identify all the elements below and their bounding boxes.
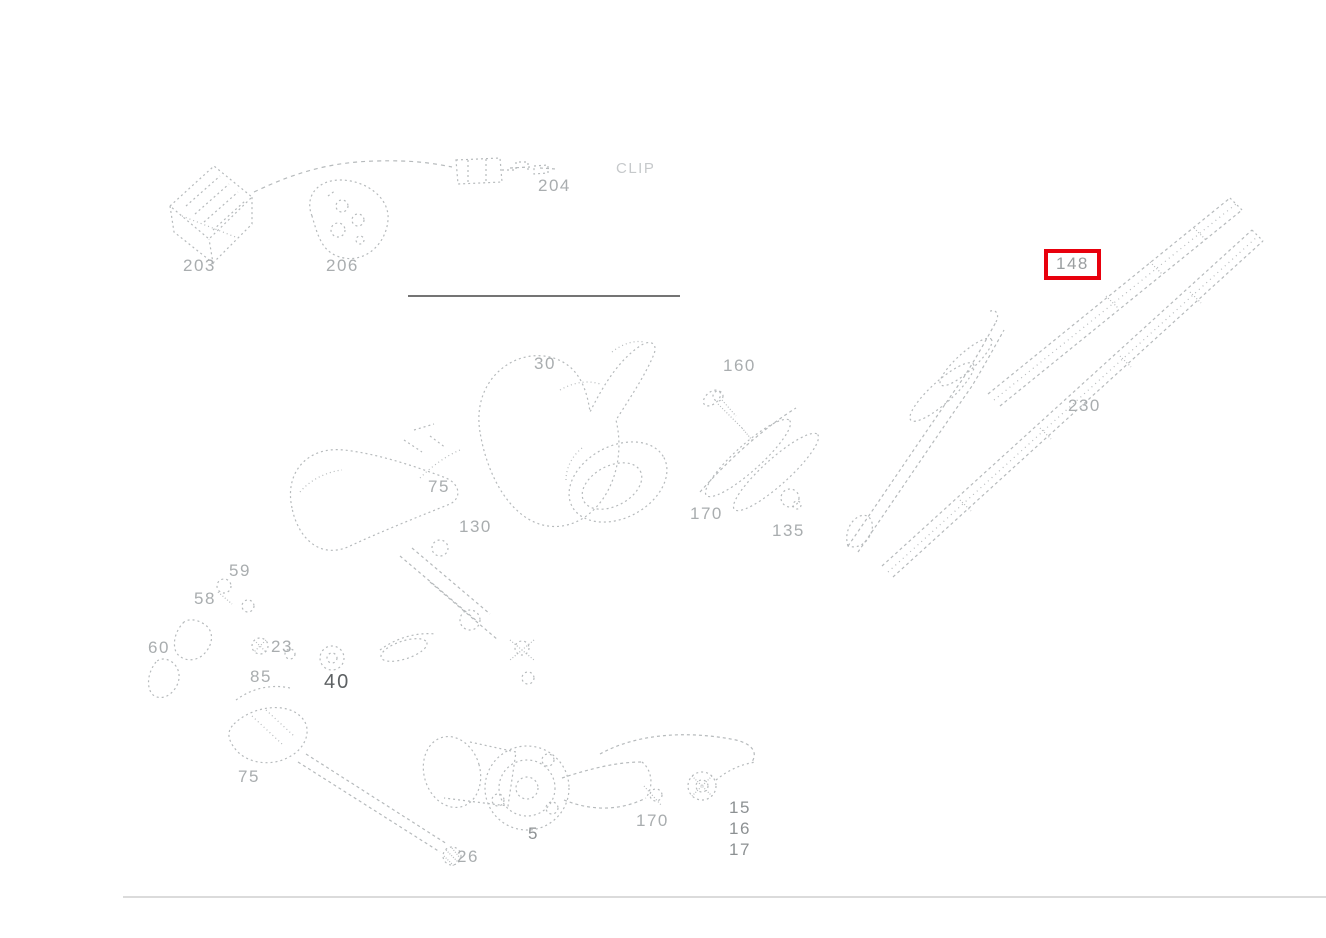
part-label-16[interactable]: 16 — [729, 819, 751, 839]
part-label-204[interactable]: 204 — [538, 176, 571, 196]
part-label-26[interactable]: 26 — [457, 847, 479, 867]
part-label-5[interactable]: 5 — [528, 824, 539, 844]
part-label-160[interactable]: 160 — [723, 356, 756, 376]
part-label-75a[interactable]: 75 — [428, 477, 450, 497]
part-label-clip[interactable]: CLIP — [616, 160, 655, 177]
part-label-148[interactable]: 148 — [1044, 249, 1101, 280]
part-label-30[interactable]: 30 — [534, 354, 556, 374]
part-label-85[interactable]: 85 — [250, 667, 272, 687]
part-label-203[interactable]: 203 — [183, 256, 216, 276]
part-label-206[interactable]: 206 — [326, 256, 359, 276]
part-label-170b[interactable]: 170 — [636, 811, 669, 831]
part-label-230[interactable]: 230 — [1068, 396, 1101, 416]
part-label-40[interactable]: 40 — [324, 671, 350, 694]
part-label-23[interactable]: 23 — [271, 637, 293, 657]
labels-layer: 203206204CLIP148230301607513017013559586… — [0, 0, 1326, 938]
parts-diagram-page: 203206204CLIP148230301607513017013559586… — [0, 0, 1326, 938]
part-label-60[interactable]: 60 — [148, 638, 170, 658]
part-label-59[interactable]: 59 — [229, 561, 251, 581]
part-label-75b[interactable]: 75 — [238, 767, 260, 787]
part-label-58[interactable]: 58 — [194, 589, 216, 609]
part-label-170a[interactable]: 170 — [690, 504, 723, 524]
part-label-17[interactable]: 17 — [729, 840, 751, 860]
part-label-15[interactable]: 15 — [729, 798, 751, 818]
part-label-135[interactable]: 135 — [772, 521, 805, 541]
part-label-130[interactable]: 130 — [459, 517, 492, 537]
